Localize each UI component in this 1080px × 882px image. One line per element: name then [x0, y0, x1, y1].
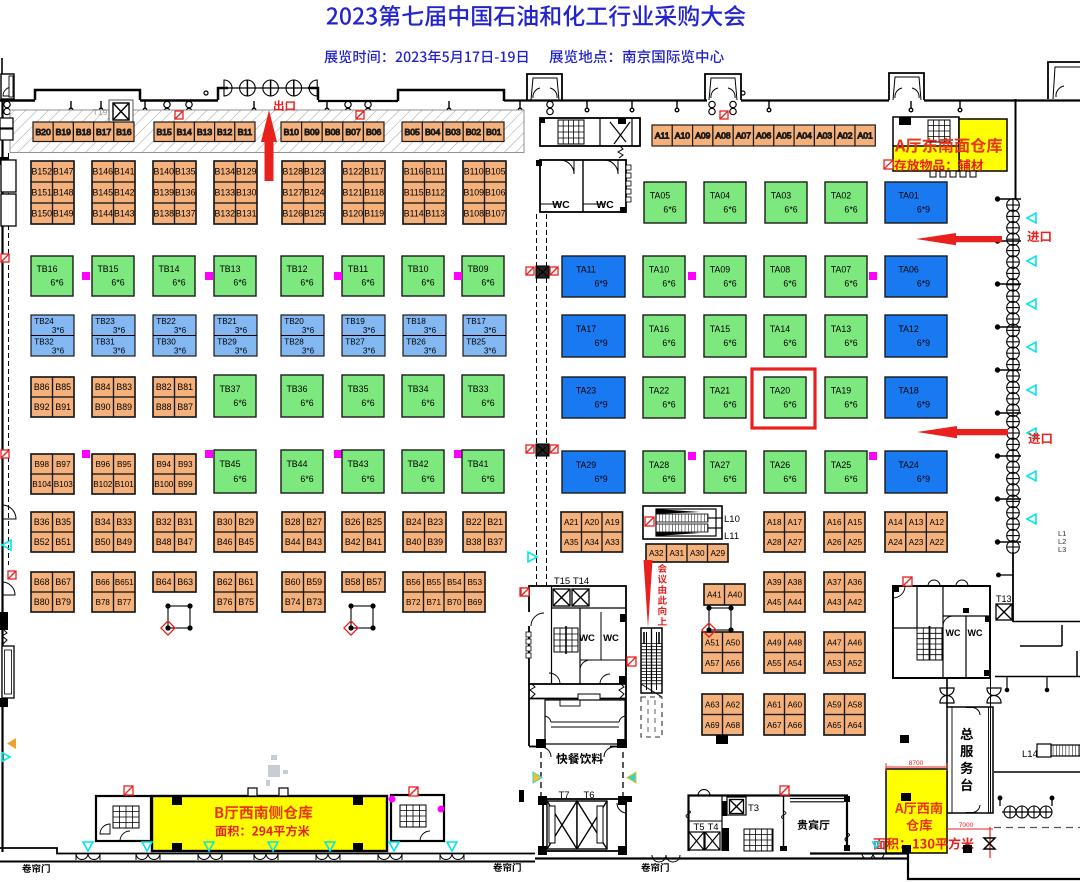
svg-text:A19: A19 [605, 518, 620, 527]
svg-text:A66: A66 [787, 721, 802, 730]
svg-text:B54: B54 [447, 578, 462, 587]
svg-text:L3: L3 [1058, 545, 1066, 554]
svg-text:B138: B138 [153, 209, 174, 219]
svg-text:B148: B148 [53, 188, 74, 198]
svg-text:A09: A09 [695, 131, 711, 141]
svg-text:A21: A21 [564, 518, 579, 527]
svg-text:B132: B132 [214, 209, 235, 219]
svg-text:B73: B73 [306, 597, 322, 607]
svg-text:TB25: TB25 [466, 338, 486, 347]
svg-text:6*6: 6*6 [50, 278, 63, 288]
svg-text:B15: B15 [156, 127, 172, 137]
svg-text:6*6: 6*6 [421, 278, 434, 288]
svg-text:B77: B77 [117, 598, 132, 607]
svg-text:TB44: TB44 [286, 459, 307, 469]
svg-text:B120: B120 [342, 209, 363, 219]
svg-text:A29: A29 [710, 549, 725, 558]
svg-text:A68: A68 [725, 721, 740, 730]
svg-text:6*9: 6*9 [594, 338, 607, 348]
svg-text:B26: B26 [345, 517, 361, 527]
svg-text:B128: B128 [282, 167, 303, 177]
svg-text:TB09: TB09 [467, 264, 488, 274]
svg-text:6*6: 6*6 [783, 474, 796, 484]
svg-text:6*6: 6*6 [662, 338, 675, 348]
svg-text:3*6: 3*6 [363, 347, 376, 356]
svg-text:B125: B125 [304, 209, 325, 219]
svg-text:TB26: TB26 [406, 338, 426, 347]
svg-text:B70: B70 [447, 598, 462, 607]
svg-text:A47: A47 [827, 638, 842, 647]
svg-text:A18: A18 [767, 518, 782, 527]
svg-text:B89: B89 [116, 402, 132, 412]
svg-text:A27: A27 [787, 538, 802, 547]
svg-text:TA08: TA08 [770, 264, 790, 274]
svg-text:B92: B92 [34, 402, 50, 412]
svg-text:A48: A48 [787, 638, 802, 647]
svg-text:B38: B38 [466, 537, 482, 547]
svg-text:6*6: 6*6 [662, 399, 675, 409]
svg-text:3*6: 3*6 [484, 347, 497, 356]
svg-text:6*6: 6*6 [361, 474, 374, 484]
svg-text:TB24: TB24 [34, 317, 54, 326]
svg-text:B21: B21 [487, 517, 503, 527]
svg-text:A41: A41 [707, 591, 722, 600]
svg-text:A38: A38 [787, 578, 802, 587]
svg-text:B100: B100 [154, 480, 174, 489]
svg-text:TB37: TB37 [219, 384, 240, 394]
svg-text:TA21: TA21 [710, 385, 730, 395]
svg-text:B119: B119 [364, 209, 384, 219]
svg-text:TA23: TA23 [576, 385, 596, 395]
svg-text:B130: B130 [236, 188, 257, 198]
svg-text:A56: A56 [725, 659, 740, 668]
svg-text:B45: B45 [238, 537, 254, 547]
svg-text:B113: B113 [425, 209, 445, 219]
svg-text:B127: B127 [282, 188, 303, 198]
svg-text:TA18: TA18 [898, 385, 918, 395]
svg-text:B57: B57 [366, 577, 382, 587]
svg-text:B146: B146 [92, 167, 113, 177]
svg-text:B30: B30 [217, 517, 233, 527]
svg-text:TA13: TA13 [831, 324, 851, 334]
svg-text:6*9: 6*9 [594, 399, 607, 409]
svg-text:A61: A61 [767, 700, 782, 709]
svg-text:B97: B97 [56, 460, 71, 469]
svg-text:B83: B83 [116, 382, 132, 392]
svg-text:B14: B14 [177, 127, 193, 137]
svg-text:TA27: TA27 [710, 460, 730, 470]
svg-text:B66: B66 [96, 578, 111, 587]
svg-text:TB15: TB15 [97, 264, 118, 274]
svg-text:B140: B140 [153, 167, 174, 177]
svg-text:B137: B137 [175, 209, 196, 219]
svg-text:B134: B134 [214, 167, 235, 177]
svg-text:B91: B91 [55, 402, 71, 412]
svg-text:6*6: 6*6 [844, 399, 857, 409]
svg-text:B62: B62 [217, 577, 233, 587]
svg-text:A46: A46 [847, 638, 862, 647]
svg-text:6*6: 6*6 [723, 338, 736, 348]
svg-text:TB16: TB16 [36, 264, 57, 274]
svg-text:A28: A28 [767, 538, 782, 547]
svg-text:B56: B56 [406, 578, 421, 587]
svg-text:A58: A58 [847, 700, 862, 709]
svg-text:TA11: TA11 [576, 264, 596, 274]
svg-text:B39: B39 [427, 537, 443, 547]
svg-text:A11: A11 [655, 131, 670, 141]
svg-text:A01: A01 [858, 131, 874, 141]
svg-text:WC: WC [946, 628, 961, 638]
svg-text:TB35: TB35 [347, 384, 368, 394]
svg-text:B27: B27 [306, 517, 322, 527]
svg-text:A65: A65 [827, 721, 842, 730]
svg-text:B71: B71 [426, 598, 441, 607]
svg-text:3*6: 3*6 [302, 347, 315, 356]
svg-text:B19: B19 [56, 127, 72, 137]
svg-text:B98: B98 [34, 460, 49, 469]
svg-text:6*6: 6*6 [421, 474, 434, 484]
svg-text:B20: B20 [35, 127, 51, 137]
svg-text:B78: B78 [96, 598, 111, 607]
svg-text:6*6: 6*6 [300, 398, 313, 408]
svg-text:WC: WC [603, 633, 619, 644]
svg-text:B124: B124 [304, 188, 325, 198]
svg-text:TA12: TA12 [898, 324, 918, 334]
svg-text:A23: A23 [909, 538, 924, 547]
svg-text:B88: B88 [156, 402, 172, 412]
svg-text:A51: A51 [705, 638, 720, 647]
svg-text:A52: A52 [847, 659, 862, 668]
svg-text:TB13: TB13 [219, 264, 240, 274]
svg-text:A16: A16 [827, 518, 842, 527]
svg-text:A03: A03 [817, 131, 833, 141]
svg-text:B53: B53 [467, 578, 482, 587]
svg-text:B55: B55 [426, 578, 441, 587]
svg-text:TB33: TB33 [467, 384, 488, 394]
svg-text:WC: WC [579, 633, 595, 644]
svg-text:TB14: TB14 [158, 264, 179, 274]
svg-text:B85: B85 [55, 382, 71, 392]
svg-text:6*6: 6*6 [111, 278, 124, 288]
svg-text:B10: B10 [284, 127, 300, 137]
svg-text:B72: B72 [406, 598, 421, 607]
svg-text:B131: B131 [236, 209, 257, 219]
svg-text:A59: A59 [827, 700, 842, 709]
svg-text:TB32: TB32 [34, 338, 54, 347]
svg-text:TB22: TB22 [156, 317, 176, 326]
svg-text:TA01: TA01 [898, 190, 918, 200]
svg-text:B18: B18 [76, 127, 92, 137]
svg-text:6*9: 6*9 [917, 399, 930, 409]
svg-text:TB23: TB23 [95, 317, 115, 326]
svg-text:B151: B151 [31, 188, 52, 198]
svg-text:B123: B123 [304, 167, 325, 177]
svg-text:B107: B107 [485, 209, 506, 219]
svg-text:6*6: 6*6 [481, 474, 494, 484]
svg-text:B86: B86 [34, 382, 50, 392]
svg-text:6*6: 6*6 [233, 398, 246, 408]
svg-text:B58: B58 [345, 577, 361, 587]
svg-text:TB11: TB11 [348, 264, 368, 274]
svg-text:TB36: TB36 [286, 384, 307, 394]
svg-text:T13: T13 [996, 594, 1012, 604]
svg-text:TA14: TA14 [770, 324, 790, 334]
svg-text:TA19: TA19 [831, 385, 851, 395]
svg-text:B75: B75 [238, 597, 254, 607]
svg-text:B126: B126 [282, 209, 303, 219]
svg-text:B141: B141 [114, 167, 135, 177]
svg-text:A57: A57 [705, 659, 720, 668]
svg-text:B03: B03 [445, 127, 461, 137]
svg-text:B104: B104 [32, 480, 52, 489]
svg-text:B144: B144 [92, 209, 113, 219]
svg-text:A26: A26 [827, 538, 842, 547]
svg-text:A02: A02 [837, 131, 853, 141]
svg-text:B67: B67 [55, 577, 71, 587]
svg-text:B01: B01 [486, 127, 502, 137]
svg-text:B69: B69 [467, 598, 482, 607]
svg-text:TB41: TB41 [467, 459, 488, 469]
svg-text:B114: B114 [404, 209, 424, 219]
svg-text:TA02: TA02 [831, 190, 851, 200]
svg-text:A60: A60 [787, 700, 802, 709]
svg-text:B05: B05 [405, 127, 421, 137]
svg-text:B16: B16 [116, 127, 132, 137]
svg-text:6*6: 6*6 [361, 278, 374, 288]
svg-text:B129: B129 [236, 167, 257, 177]
svg-text:6*6: 6*6 [723, 204, 736, 214]
svg-text:B60: B60 [285, 577, 301, 587]
svg-text:TA05: TA05 [650, 190, 670, 200]
svg-text:A42: A42 [847, 598, 862, 607]
svg-text:B147: B147 [53, 167, 74, 177]
svg-text:B49: B49 [116, 537, 132, 547]
svg-text:B35: B35 [55, 517, 71, 527]
svg-text:TB30: TB30 [156, 338, 176, 347]
svg-text:TA17: TA17 [576, 324, 596, 334]
svg-text:A62: A62 [725, 700, 740, 709]
svg-text:TB18: TB18 [406, 317, 426, 326]
svg-text:B93: B93 [178, 460, 193, 469]
svg-text:A07: A07 [736, 131, 752, 141]
svg-text:B33: B33 [116, 517, 132, 527]
svg-text:WC: WC [968, 628, 983, 638]
svg-text:7000: 7000 [959, 822, 974, 829]
svg-text:L11: L11 [724, 531, 739, 542]
svg-text:A06: A06 [756, 131, 772, 141]
svg-text:6*6: 6*6 [233, 278, 246, 288]
svg-text:TB20: TB20 [284, 317, 304, 326]
svg-text:B80: B80 [34, 597, 50, 607]
svg-text:A44: A44 [787, 598, 802, 607]
svg-text:3*6: 3*6 [235, 347, 248, 356]
svg-text:A67: A67 [767, 721, 782, 730]
svg-text:6*6: 6*6 [844, 338, 857, 348]
svg-text:A17: A17 [787, 518, 802, 527]
svg-text:TA28: TA28 [649, 460, 669, 470]
svg-text:A50: A50 [725, 638, 740, 647]
svg-text:3*6: 3*6 [52, 326, 65, 335]
svg-text:B24: B24 [406, 517, 422, 527]
svg-text:6*6: 6*6 [663, 204, 676, 214]
svg-text:6*6: 6*6 [233, 474, 246, 484]
svg-text:A43: A43 [827, 598, 842, 607]
svg-text:6*6: 6*6 [361, 398, 374, 408]
svg-text:B34: B34 [95, 517, 111, 527]
svg-text:A05: A05 [776, 131, 792, 141]
svg-text:A34: A34 [584, 538, 599, 547]
svg-text:B04: B04 [425, 127, 441, 137]
svg-text:B90: B90 [95, 402, 111, 412]
svg-text:B142: B142 [114, 188, 135, 198]
svg-text:6*6: 6*6 [421, 398, 434, 408]
svg-text:3*6: 3*6 [363, 326, 376, 335]
svg-text:B651: B651 [115, 578, 134, 587]
svg-text:TB17: TB17 [466, 317, 486, 326]
svg-text:3*6: 3*6 [113, 326, 126, 335]
svg-text:TA06: TA06 [898, 264, 918, 274]
svg-text:6*6: 6*6 [783, 399, 796, 409]
svg-text:L10: L10 [724, 514, 740, 525]
svg-text:B48: B48 [156, 537, 172, 547]
svg-text:TA26: TA26 [770, 460, 790, 470]
svg-text:A37: A37 [827, 578, 842, 587]
svg-text:B11: B11 [238, 127, 253, 137]
svg-text:T3: T3 [748, 803, 759, 814]
svg-text:B12: B12 [217, 127, 233, 137]
svg-text:B51: B51 [55, 537, 71, 547]
svg-text:A40: A40 [727, 591, 742, 600]
svg-text:3*6: 3*6 [113, 347, 126, 356]
svg-text:6*9: 6*9 [917, 338, 930, 348]
svg-text:TA16: TA16 [649, 324, 669, 334]
svg-text:TA15: TA15 [710, 324, 730, 334]
svg-text:B32: B32 [156, 517, 172, 527]
svg-text:B122: B122 [342, 167, 363, 177]
svg-text:B84: B84 [95, 382, 111, 392]
svg-text:B28: B28 [285, 517, 301, 527]
svg-text:3*6: 3*6 [424, 326, 437, 335]
svg-text:TB34: TB34 [407, 384, 428, 394]
svg-text:A35: A35 [564, 538, 579, 547]
svg-text:A32: A32 [649, 549, 664, 558]
svg-text:B63: B63 [177, 577, 193, 587]
svg-text:A13: A13 [909, 518, 924, 527]
svg-text:B82: B82 [156, 382, 172, 392]
svg-text:B96: B96 [95, 460, 110, 469]
svg-text:6*6: 6*6 [481, 278, 494, 288]
svg-text:6*6: 6*6 [172, 278, 185, 288]
svg-text:A15: A15 [847, 518, 862, 527]
svg-text:B06: B06 [366, 127, 382, 137]
svg-text:B116: B116 [404, 167, 424, 177]
svg-text:3*6: 3*6 [302, 326, 315, 335]
svg-text:B103: B103 [54, 480, 74, 489]
svg-text:TA29: TA29 [576, 460, 596, 470]
svg-text:B61: B61 [238, 577, 254, 587]
svg-text:TA07: TA07 [831, 264, 851, 274]
svg-text:6*6: 6*6 [783, 278, 796, 288]
svg-text:B59: B59 [306, 577, 322, 587]
svg-text:B115: B115 [404, 188, 424, 198]
svg-text:B23: B23 [427, 517, 443, 527]
svg-text:A08: A08 [715, 131, 731, 141]
svg-text:TA09: TA09 [710, 264, 730, 274]
svg-text:A31: A31 [669, 549, 684, 558]
svg-text:TA04: TA04 [710, 190, 730, 200]
svg-text:B25: B25 [366, 517, 382, 527]
svg-text:6*6: 6*6 [662, 278, 675, 288]
svg-text:6*6: 6*6 [723, 278, 736, 288]
svg-text:TA10: TA10 [649, 264, 669, 274]
svg-text:B41: B41 [366, 537, 382, 547]
svg-text:B08: B08 [325, 127, 341, 137]
svg-text:B43: B43 [306, 537, 322, 547]
svg-text:TA22: TA22 [649, 385, 669, 395]
svg-text:6*6: 6*6 [844, 278, 857, 288]
svg-text:B152: B152 [31, 167, 52, 177]
svg-text:B135: B135 [175, 167, 196, 177]
svg-text:B99: B99 [178, 480, 193, 489]
svg-text:TA03: TA03 [771, 190, 791, 200]
svg-text:6*6: 6*6 [300, 474, 313, 484]
svg-text:B112: B112 [425, 188, 445, 198]
svg-text:A14: A14 [888, 518, 903, 527]
svg-text:A39: A39 [767, 578, 782, 587]
svg-text:6*6: 6*6 [784, 204, 797, 214]
svg-text:T4: T4 [707, 822, 718, 833]
svg-text:3*6: 3*6 [174, 326, 187, 335]
svg-text:3*6: 3*6 [174, 347, 187, 356]
svg-text:B110: B110 [464, 167, 484, 177]
svg-text:6*6: 6*6 [783, 338, 796, 348]
svg-text:6*6: 6*6 [844, 204, 857, 214]
svg-text:B106: B106 [485, 188, 506, 198]
svg-text:B29: B29 [238, 517, 254, 527]
svg-text:B68: B68 [34, 577, 50, 587]
svg-text:TB19: TB19 [345, 317, 365, 326]
svg-text:6*9: 6*9 [594, 278, 607, 288]
svg-text:3*6: 3*6 [484, 326, 497, 335]
svg-text:WC: WC [552, 199, 570, 211]
svg-text:B139: B139 [153, 188, 174, 198]
svg-text:B117: B117 [364, 167, 384, 177]
svg-text:A54: A54 [787, 659, 802, 668]
svg-text:B102: B102 [93, 480, 113, 489]
svg-text:B36: B36 [34, 517, 50, 527]
svg-text:B150: B150 [31, 209, 52, 219]
svg-text:B52: B52 [34, 537, 50, 547]
svg-text:A12: A12 [929, 518, 944, 527]
svg-text:B02: B02 [466, 127, 482, 137]
svg-text:6*6: 6*6 [723, 399, 736, 409]
svg-text:3*6: 3*6 [424, 347, 437, 356]
svg-text:B118: B118 [364, 188, 384, 198]
svg-text:B111: B111 [426, 167, 445, 177]
svg-text:B149: B149 [53, 209, 74, 219]
svg-text:TB31: TB31 [95, 338, 115, 347]
svg-text:A45: A45 [767, 598, 782, 607]
svg-text:3*6: 3*6 [235, 326, 248, 335]
svg-text:TA24: TA24 [898, 460, 918, 470]
svg-text:8700: 8700 [909, 760, 924, 767]
svg-text:A63: A63 [705, 700, 720, 709]
svg-text:B47: B47 [177, 537, 193, 547]
svg-text:B09: B09 [304, 127, 320, 137]
svg-text:TB29: TB29 [217, 338, 237, 347]
svg-text:B13: B13 [197, 127, 213, 137]
svg-text:B81: B81 [177, 382, 193, 392]
